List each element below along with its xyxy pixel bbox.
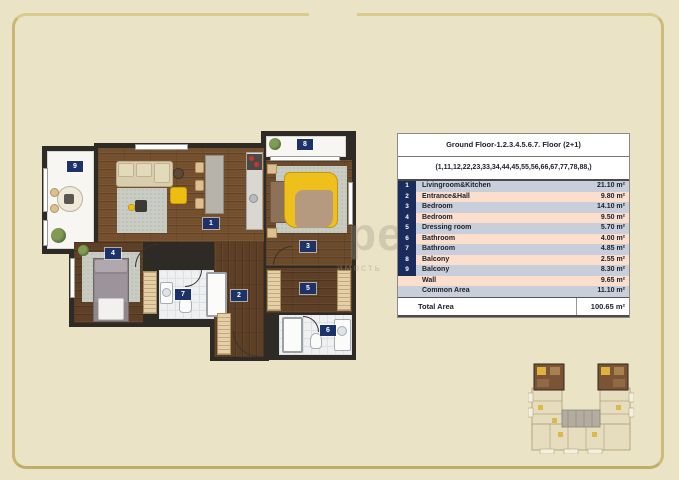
- row-label: Balcony: [416, 265, 567, 276]
- row-area: 9.50 m²: [567, 213, 629, 224]
- bed3-throw: [295, 190, 333, 228]
- row-label: Bathroom: [416, 244, 567, 255]
- bed4-pillow: [95, 260, 127, 272]
- row-label: Balcony: [416, 255, 567, 266]
- floorplan: 1 2 3 4 5 6 7 8 9: [40, 128, 360, 364]
- balcony-chair: [50, 188, 59, 197]
- bar-stool: [195, 198, 204, 209]
- sink-icon: [162, 288, 171, 297]
- kitchen-sink: [249, 194, 258, 203]
- row-number: 6: [398, 234, 416, 245]
- room-badge-8: 8: [297, 139, 313, 150]
- row-number: 8: [398, 255, 416, 266]
- table-row: 5 Dressing room 5.70 m²: [398, 223, 629, 234]
- row-number: 5: [398, 223, 416, 234]
- window-balcony9-left2: [43, 220, 48, 246]
- bar-stool: [195, 180, 204, 191]
- page: { "table": { "title": "Ground Floor-1.2.…: [0, 0, 679, 480]
- bed4-sheet: [98, 298, 124, 320]
- armchair-yellow: [170, 187, 187, 204]
- sink-icon: [337, 326, 347, 336]
- row-label: Bedroom: [416, 202, 567, 213]
- wardrobe: [337, 270, 351, 311]
- row-area: 4.85 m²: [567, 244, 629, 255]
- room-badge-1: 1: [203, 218, 219, 229]
- row-area: 8.30 m²: [567, 265, 629, 276]
- row-area: 4.00 m²: [567, 234, 629, 245]
- building-overview-map: [528, 360, 634, 454]
- bar-stool: [195, 162, 204, 173]
- wardrobe: [143, 271, 157, 314]
- row-number: 4: [398, 213, 416, 224]
- row-label: Bathroom: [416, 234, 567, 245]
- area-table: Ground Floor-1.2.3.4.5.6.7. Floor (2+1) …: [397, 133, 630, 318]
- table-title: Ground Floor-1.2.3.4.5.6.7. Floor (2+1): [398, 134, 629, 157]
- pot-icon: [254, 162, 259, 167]
- window-bedroom4-left: [70, 258, 75, 298]
- row-label: Dressing room: [416, 223, 567, 234]
- watermark-small: имость: [337, 263, 382, 274]
- sofa-cushion: [118, 163, 134, 177]
- row-number: 2: [398, 192, 416, 203]
- room-badge-3: 3: [300, 241, 316, 252]
- row-label: Common Area: [416, 286, 567, 297]
- highlighted-unit-left: [534, 364, 564, 390]
- row-area: 5.70 m²: [567, 223, 629, 234]
- window-balcony9-left: [43, 168, 48, 212]
- row-area: 11.10 m²: [567, 286, 629, 297]
- watermark-large: pe: [348, 207, 404, 261]
- sofa-cushion: [154, 163, 170, 183]
- window-living-top: [135, 144, 188, 150]
- row-number: [398, 276, 416, 287]
- table-row: 9 Balcony 8.30 m²: [398, 265, 629, 276]
- balcony-decor: [64, 194, 74, 204]
- table-row: 3 Bedroom 14.10 m²: [398, 202, 629, 213]
- nightstand: [267, 228, 277, 238]
- building-overview-svg: [528, 360, 634, 454]
- row-label: Bedroom: [416, 213, 567, 224]
- table-row: 4 Bedroom 9.50 m²: [398, 213, 629, 224]
- total-area-value: 100.65 m²: [577, 298, 629, 315]
- row-label: Livingroom&Kitchen: [416, 181, 567, 192]
- decor-yellow: [128, 204, 135, 211]
- table-row: 8 Balcony 2.55 m²: [398, 255, 629, 266]
- table-subtitle: (1,11,12,22,23,33,34,44,45,55,56,66,67,7…: [398, 157, 629, 181]
- row-area: 9.80 m²: [567, 192, 629, 203]
- plant-icon: [51, 228, 66, 243]
- row-area: 21.10 m²: [567, 181, 629, 192]
- row-number: 7: [398, 244, 416, 255]
- table-row: Common Area 11.10 m²: [398, 286, 629, 297]
- room-badge-2: 2: [231, 290, 247, 301]
- wardrobe: [267, 270, 281, 311]
- row-label: Wall: [416, 276, 567, 287]
- table-row: Wall 9.65 m²: [398, 276, 629, 287]
- row-area: 9.65 m²: [567, 276, 629, 287]
- hall-cabinet: [217, 313, 231, 355]
- highlighted-unit-right: [598, 364, 628, 390]
- row-number: 1: [398, 181, 416, 192]
- table-row: 7 Bathroom 4.85 m²: [398, 244, 629, 255]
- sofa-cushion: [136, 163, 152, 177]
- row-area: 14.10 m²: [567, 202, 629, 213]
- table-row: 2 Entrance&Hall 9.80 m²: [398, 192, 629, 203]
- room-badge-9: 9: [67, 161, 83, 172]
- room-badge-5: 5: [300, 283, 316, 294]
- total-label: Total Area: [398, 298, 577, 315]
- row-number: 3: [398, 202, 416, 213]
- room-badge-7: 7: [175, 289, 191, 300]
- kitchen-island: [205, 155, 224, 214]
- shower: [206, 272, 227, 317]
- plant-icon: [269, 138, 281, 150]
- side-table: [173, 168, 184, 179]
- nightstand: [267, 164, 277, 174]
- total-row: Total Area 100.65 m²: [398, 297, 629, 317]
- plant-icon: [78, 245, 89, 256]
- balcony-chair: [50, 204, 59, 213]
- window-balcony8: [270, 156, 340, 161]
- row-area: 2.55 m²: [567, 255, 629, 266]
- table-row: 1 Livingroom&Kitchen 21.10 m²: [398, 181, 629, 192]
- coffee-table: [135, 200, 147, 212]
- row-label: Entrance&Hall: [416, 192, 567, 203]
- frame-top-gap: [309, 10, 357, 20]
- room-badge-6: 6: [320, 325, 336, 336]
- table-row: 6 Bathroom 4.00 m²: [398, 234, 629, 245]
- row-number: [398, 286, 416, 297]
- room-badge-4: 4: [105, 248, 121, 259]
- pot-icon: [249, 156, 254, 161]
- row-number: 9: [398, 265, 416, 276]
- bath6-shower: [282, 317, 303, 353]
